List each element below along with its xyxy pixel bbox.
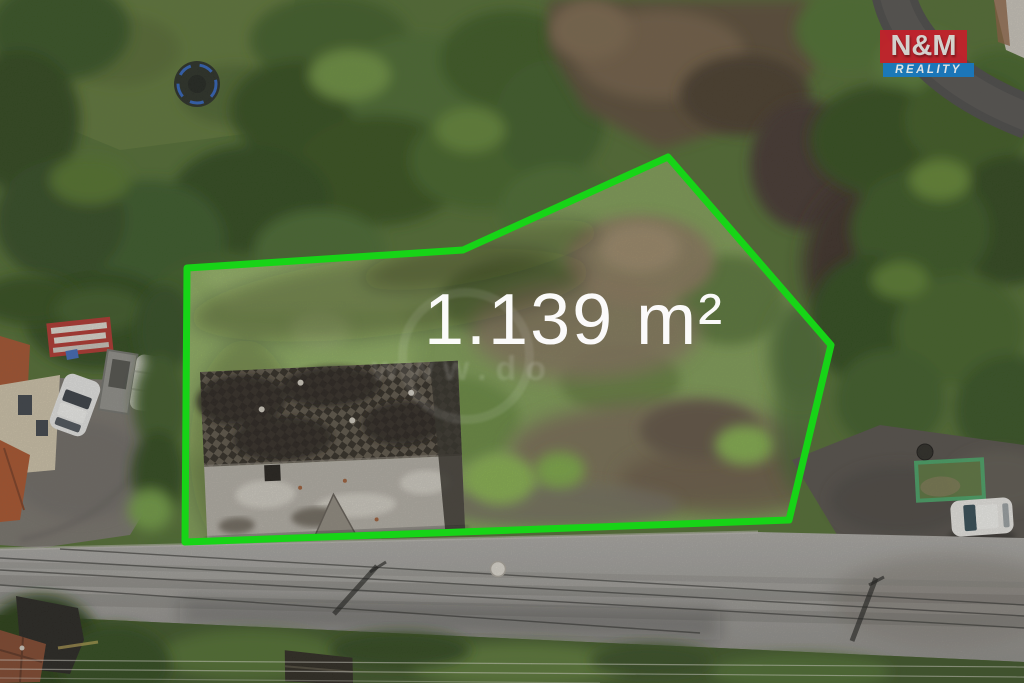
aerial-photo-listing: www.do 1.139 m² N&M REALITY — [0, 0, 1024, 683]
agency-logo: N&M REALITY — [880, 30, 974, 77]
agency-logo-name: N&M — [880, 30, 967, 63]
area-label: 1.139 m² — [424, 284, 724, 356]
agency-logo-subtitle: REALITY — [883, 63, 974, 77]
